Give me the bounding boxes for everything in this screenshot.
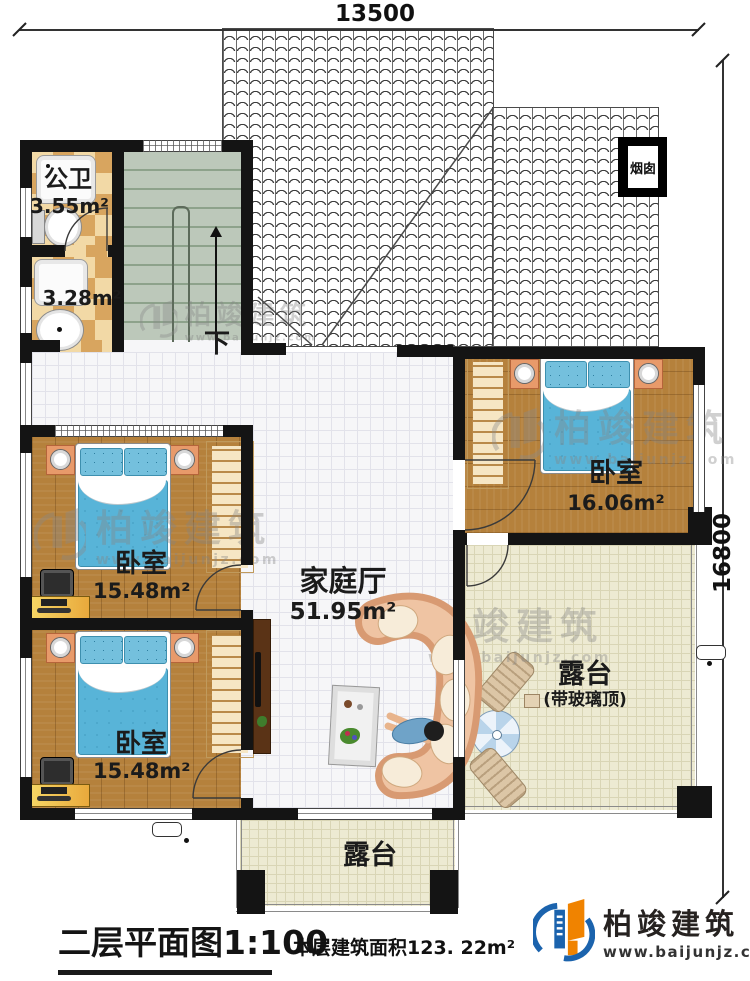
- wall-segment: [223, 425, 253, 437]
- floor-area-note: 本层建筑面积123. 22m²: [293, 933, 515, 960]
- wall-segment: [20, 425, 55, 437]
- wall-segment: [20, 152, 32, 188]
- pillow: [80, 448, 123, 476]
- lamp-icon: [514, 363, 535, 384]
- dimension-right-label: 16800: [710, 503, 736, 603]
- window: [20, 287, 32, 333]
- drain-dot: [707, 661, 712, 666]
- window: [20, 658, 32, 777]
- pillow: [124, 448, 167, 476]
- wall-segment: [241, 798, 253, 808]
- flower: [352, 735, 357, 740]
- company-url: www.baijunjz.com: [603, 943, 750, 961]
- pillow: [545, 361, 587, 388]
- flower: [345, 731, 350, 736]
- wall-segment: [20, 618, 253, 630]
- window: [693, 385, 705, 512]
- tv-screen: [255, 652, 261, 707]
- wall-segment: [108, 245, 112, 257]
- area-label-bedroom-right: 16.06m²: [560, 492, 672, 514]
- wall-segment: [20, 333, 32, 352]
- wall-corner: [237, 870, 265, 914]
- title-underline: [58, 970, 272, 975]
- drain-symbol: [696, 645, 726, 660]
- room-label-bedroom-mid: 卧室: [103, 551, 179, 578]
- wall-segment: [20, 140, 143, 152]
- wall-segment: [20, 237, 32, 287]
- room-label-terrace-glass: 露台: [537, 661, 633, 689]
- wall-segment: [453, 347, 705, 359]
- company-name: 柏竣建筑: [603, 901, 750, 943]
- wall-segment: [453, 347, 465, 460]
- company-logo-icon: [533, 896, 595, 966]
- wall-segment: [241, 343, 286, 355]
- wall-segment: [241, 437, 253, 565]
- window: [143, 140, 222, 152]
- floor-plan-canvas: 13500 16800 烟囱 下: [0, 0, 750, 981]
- desk: [22, 596, 90, 619]
- stair-arrow-head: [210, 226, 222, 237]
- wall-segment: [508, 533, 705, 545]
- area-label-bath2: 3.28m²: [42, 288, 122, 309]
- watermark-logo-icon: [140, 296, 177, 341]
- wall-segment: [32, 245, 65, 257]
- lamp-icon: [50, 637, 71, 658]
- area-label-bath1: 3.55m²: [30, 196, 106, 217]
- coffee-table: [328, 685, 380, 767]
- drawing-title-text: 二层平面图: [58, 923, 223, 962]
- terrace-railing: [465, 806, 695, 814]
- chimney-label: 烟囱: [628, 146, 658, 188]
- pillow: [588, 361, 630, 388]
- drain-symbol: [152, 822, 182, 837]
- room-label-family-hall: 家庭厅: [278, 566, 408, 596]
- wall-segment: [453, 757, 465, 820]
- dimension-top-label: 13500: [327, 1, 423, 27]
- drawing-title: 二层平面图1:100: [58, 916, 328, 975]
- dimension-top-line: [19, 29, 699, 31]
- wall-segment: [453, 533, 467, 545]
- dimension-right-line: [722, 60, 724, 898]
- terrace-railing: [691, 545, 697, 810]
- note-label-terrace-glass: (带玻璃顶): [524, 692, 646, 710]
- wall-segment: [112, 152, 124, 352]
- bath-door-floor: [65, 245, 112, 257]
- watermark-logo-icon: [492, 402, 544, 464]
- lamp-icon: [174, 637, 195, 658]
- wall-segment: [397, 345, 453, 357]
- window: [20, 363, 32, 425]
- room-label-terrace-bottom: 露台: [322, 842, 418, 870]
- stair-down-label: 下: [198, 331, 236, 358]
- wall-segment: [192, 808, 298, 820]
- window: [298, 808, 432, 820]
- wall-segment: [20, 352, 32, 363]
- wall-segment: [693, 347, 705, 385]
- window: [20, 453, 32, 577]
- pillow: [124, 636, 167, 664]
- watermark-logo-icon: [34, 502, 86, 564]
- wall-segment: [241, 630, 253, 750]
- wall-corner: [677, 786, 712, 818]
- area-label-bedroom-mid: 15.48m²: [93, 580, 189, 602]
- table-item: [357, 704, 363, 710]
- desk-chair: [40, 757, 74, 786]
- sink-drain-dot: [57, 327, 62, 332]
- table-item: [344, 700, 352, 708]
- wall-corner: [430, 870, 458, 914]
- lamp-icon: [50, 449, 71, 470]
- wall-segment: [453, 545, 465, 660]
- window: [55, 425, 223, 437]
- pillow: [80, 636, 123, 664]
- watermark-name: 柏竣建筑: [554, 398, 737, 452]
- terrace-railing: [236, 904, 457, 912]
- desk: [22, 784, 90, 807]
- area-label-bedroom-bottom: 15.48m²: [93, 760, 189, 782]
- wall-segment: [32, 340, 60, 352]
- drain-dot: [184, 838, 189, 843]
- room-label-bedroom-bottom: 卧室: [103, 731, 179, 758]
- room-label-bedroom-right: 卧室: [560, 460, 672, 488]
- wall-segment: [20, 808, 75, 820]
- wall-segment: [241, 140, 253, 352]
- lamp-icon: [638, 363, 659, 384]
- room-label-bath1: 公卫: [36, 167, 100, 192]
- company-logo: 柏竣建筑 www.baijunjz.com: [533, 896, 750, 966]
- area-label-family-hall: 51.95m²: [285, 600, 401, 624]
- desk-chair: [40, 569, 74, 598]
- lamp-icon: [174, 449, 195, 470]
- window: [75, 808, 192, 820]
- chimney: 烟囱: [618, 137, 667, 197]
- window: [453, 660, 465, 757]
- wall-segment: [241, 610, 253, 618]
